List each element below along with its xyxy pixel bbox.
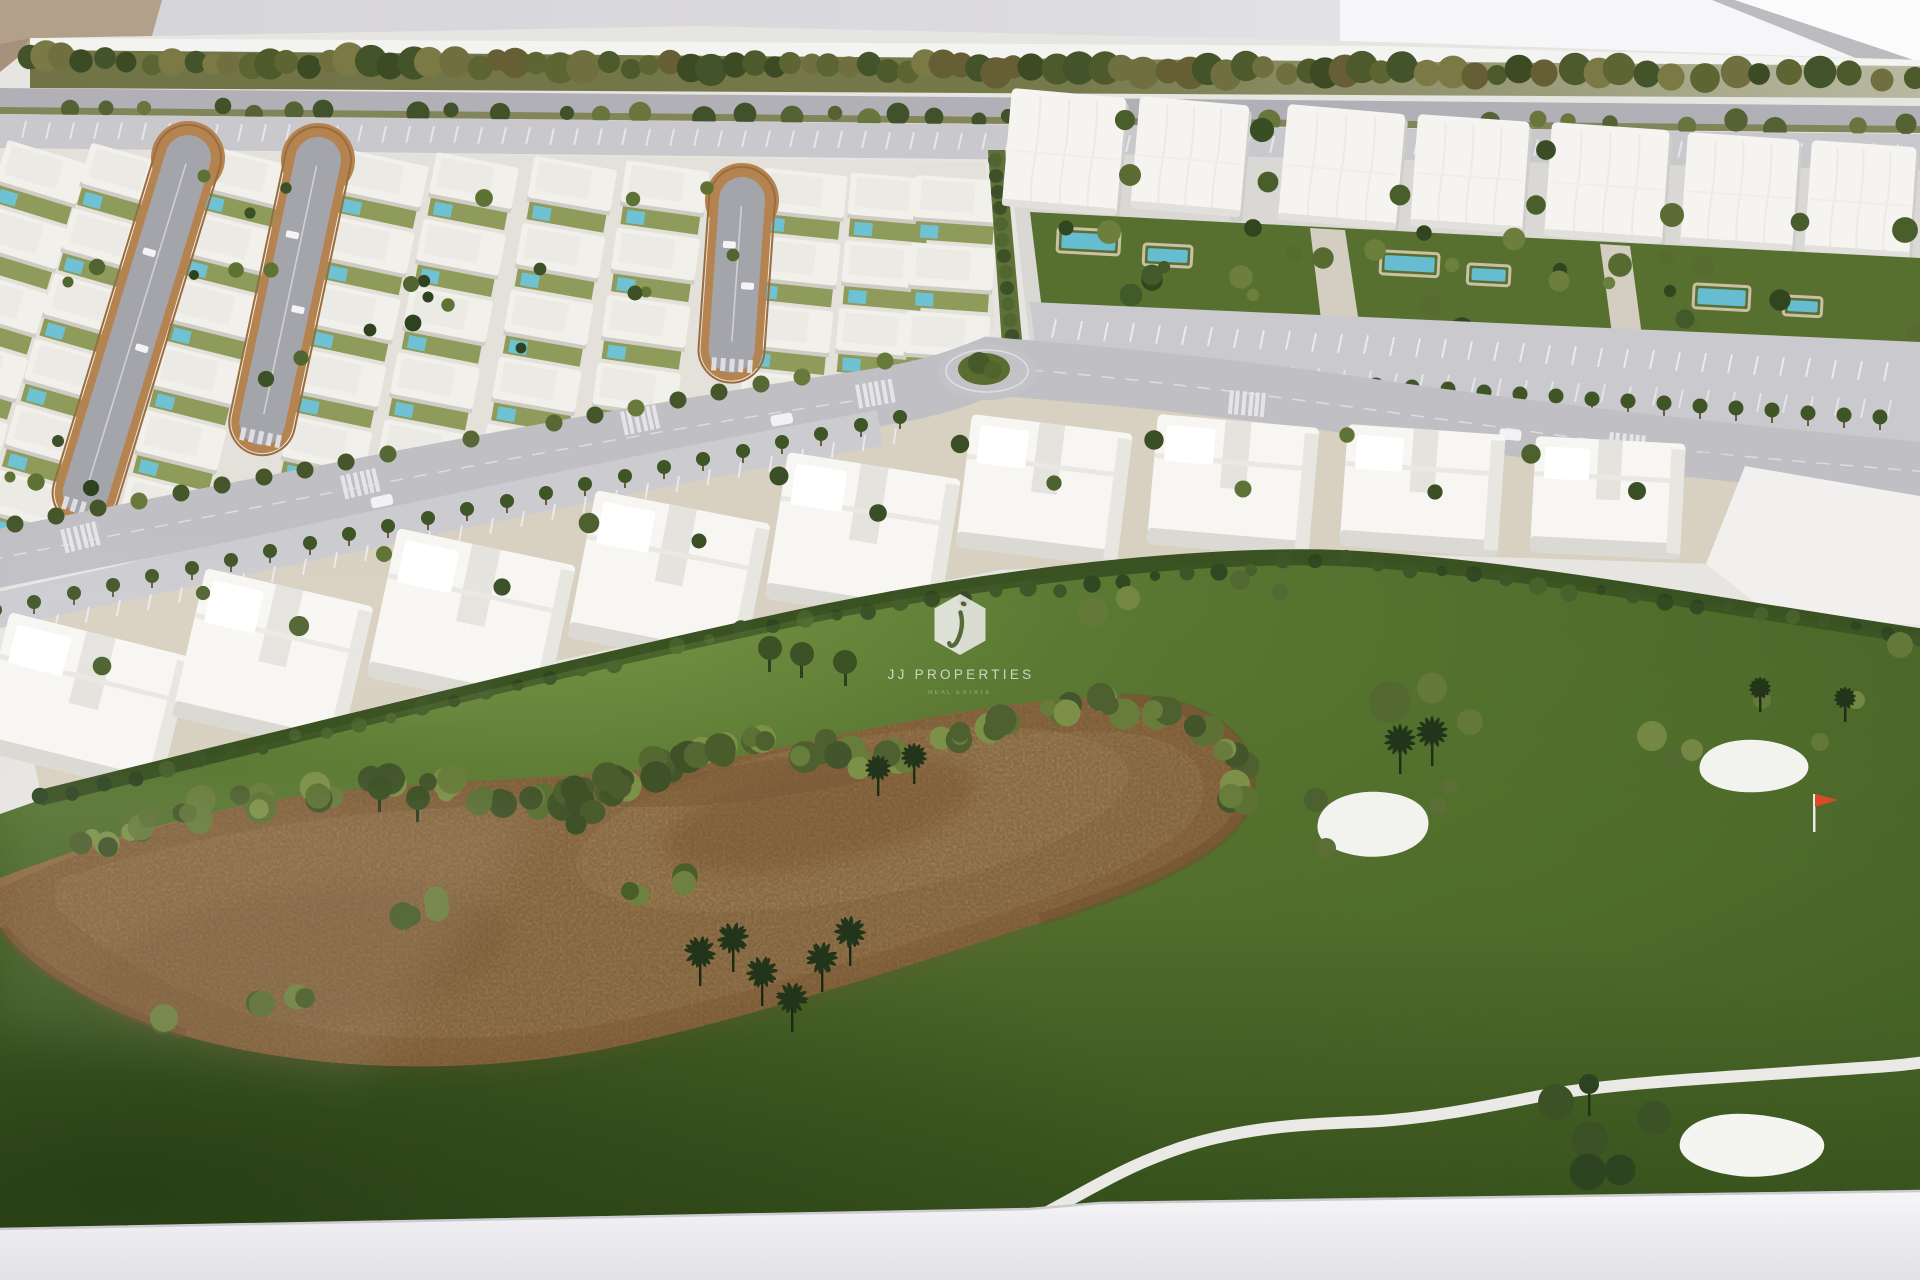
svg-text:REAL ESTATE: REAL ESTATE [928, 690, 992, 696]
svg-text:JJ PROPERTIES: JJ PROPERTIES [888, 667, 1035, 682]
